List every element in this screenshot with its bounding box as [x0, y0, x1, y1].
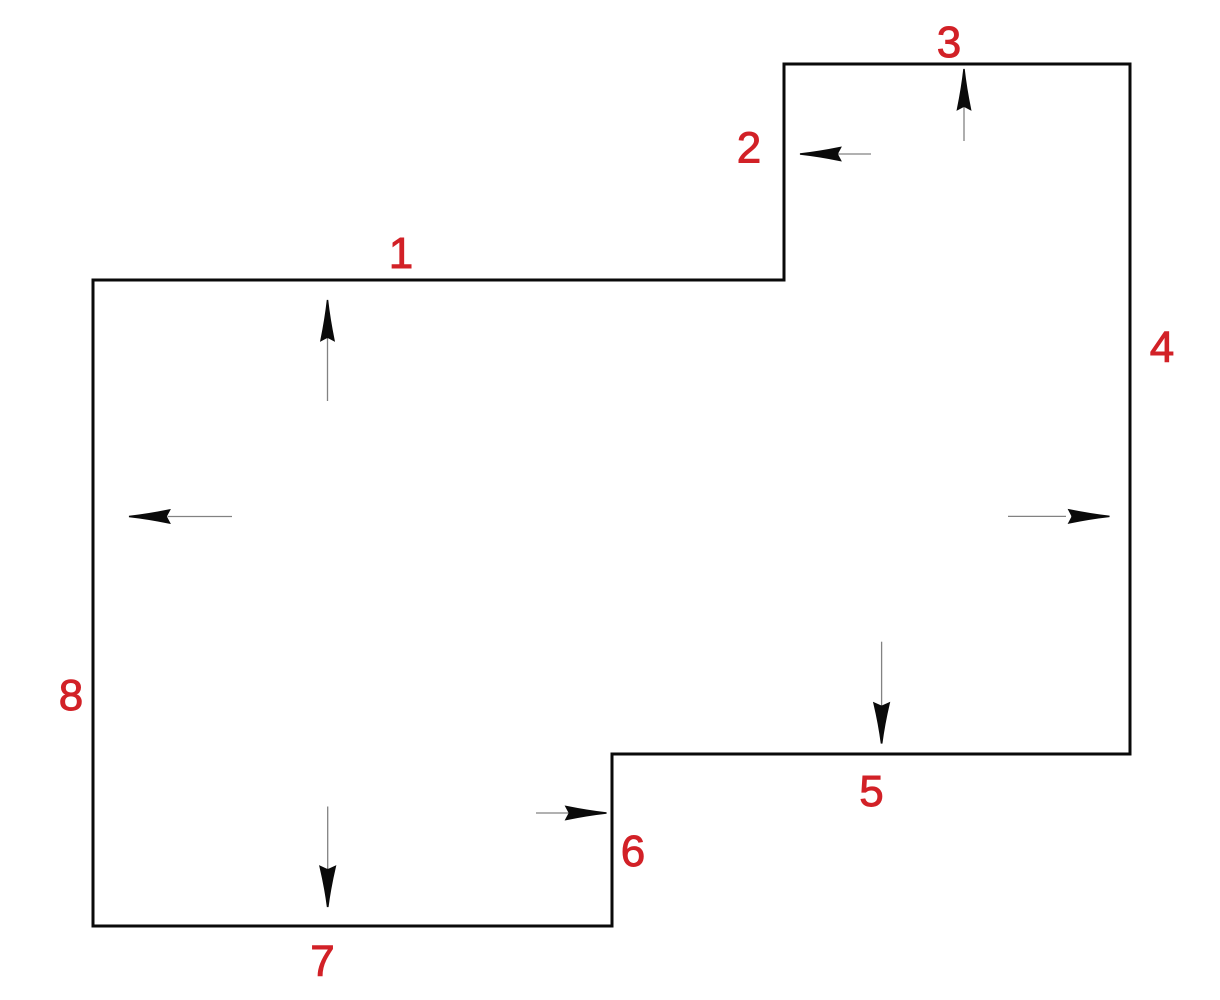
svg-text:8: 8 — [59, 671, 83, 720]
svg-text:5: 5 — [859, 767, 883, 816]
svg-text:7: 7 — [310, 937, 334, 986]
svg-text:3: 3 — [937, 18, 961, 67]
svg-text:1: 1 — [389, 229, 413, 278]
svg-text:2: 2 — [737, 124, 761, 173]
svg-text:4: 4 — [1150, 323, 1174, 372]
svg-text:6: 6 — [621, 827, 645, 876]
